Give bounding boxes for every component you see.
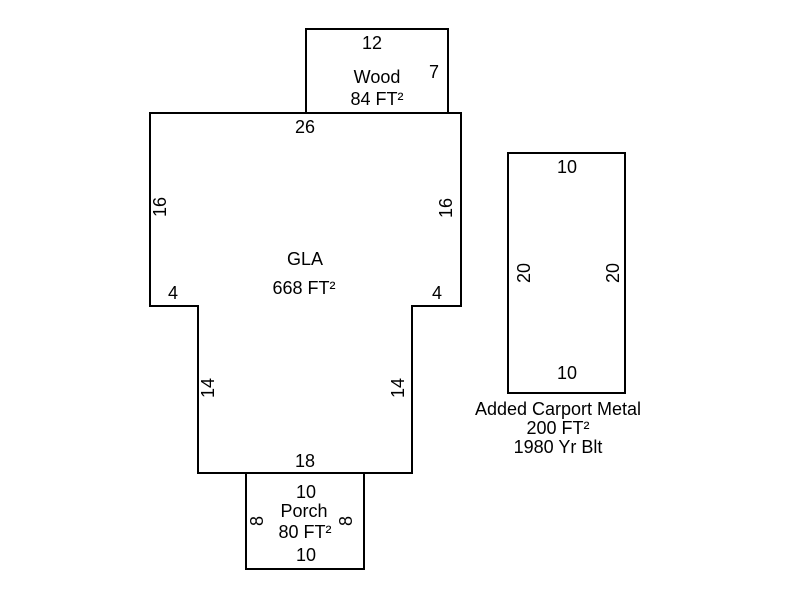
wood-area: 84 FT² — [350, 90, 403, 108]
porch-dim-left: 8 — [248, 516, 266, 526]
carport-dim-right: 20 — [604, 263, 622, 283]
porch-dim-top: 10 — [296, 483, 316, 501]
gla-dim-right-notch: 4 — [432, 284, 442, 302]
gla-dim-right-upper: 16 — [437, 198, 455, 218]
gla-label: GLA — [287, 250, 323, 268]
porch-area: 80 FT² — [278, 523, 331, 541]
porch-label: Porch — [280, 502, 327, 520]
carport-caption-area: 200 FT² — [475, 419, 641, 438]
wood-label: Wood — [354, 68, 401, 86]
porch-dim-bottom: 10 — [296, 546, 316, 564]
gla-dim-left-upper: 16 — [151, 197, 169, 217]
gla-dim-right-lower: 14 — [389, 378, 407, 398]
porch-dim-right: 8 — [337, 516, 355, 526]
wood-dim-right: 7 — [429, 63, 439, 81]
carport-caption-name: Added Carport Metal — [475, 400, 641, 419]
gla-dim-left-notch: 4 — [168, 284, 178, 302]
gla-dim-left-lower: 14 — [199, 378, 217, 398]
wood-dim-top: 12 — [362, 34, 382, 52]
floorplan-sketch: 12 Wood 7 84 FT² 26 16 16 GLA 668 FT² 4 … — [0, 0, 800, 600]
carport-caption-yearblt: 1980 Yr Blt — [475, 438, 641, 457]
carport-dim-top: 10 — [557, 158, 577, 176]
gla-dim-top: 26 — [295, 118, 315, 136]
carport-caption: Added Carport Metal 200 FT² 1980 Yr Blt — [475, 400, 641, 457]
carport-dim-left: 20 — [515, 263, 533, 283]
carport-dim-bottom: 10 — [557, 364, 577, 382]
gla-area: 668 FT² — [272, 279, 335, 297]
gla-dim-bottom: 18 — [295, 452, 315, 470]
